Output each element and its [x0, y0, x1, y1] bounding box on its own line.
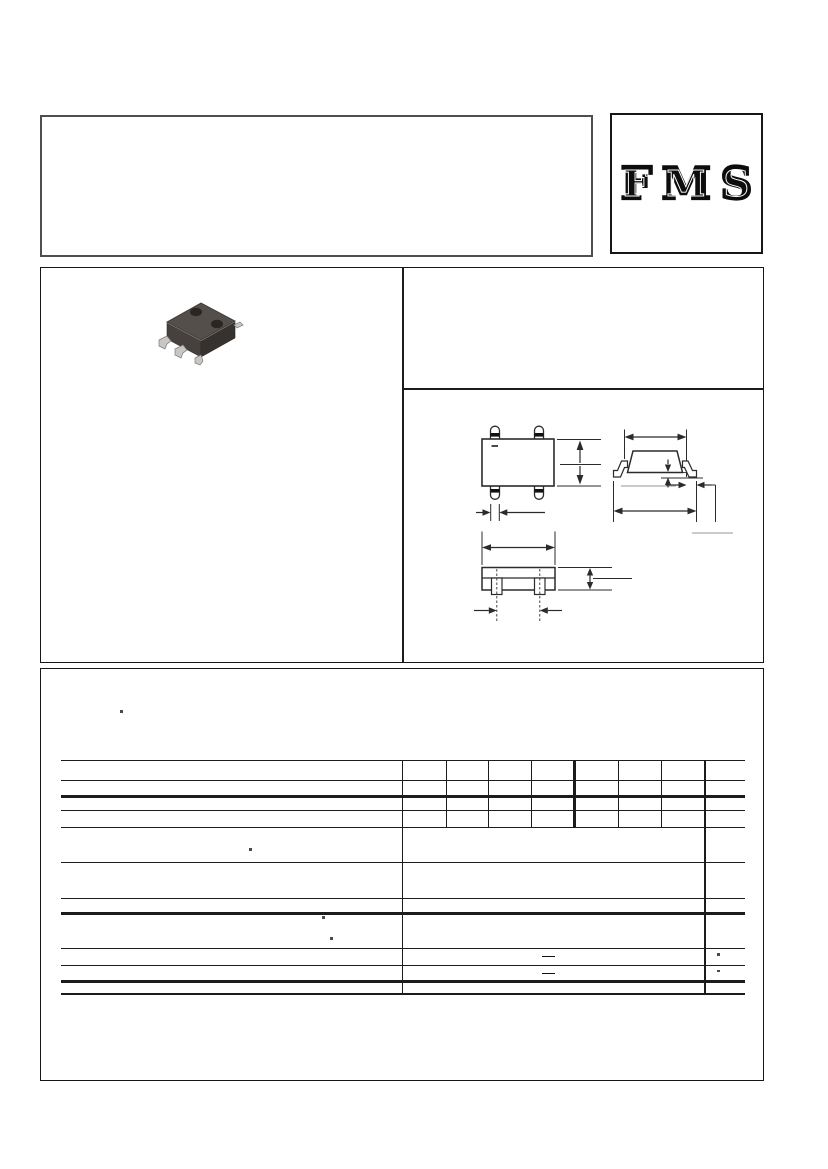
logo-letter: F: [620, 161, 652, 206]
brand-logo: FMS: [620, 161, 752, 206]
chip-hole-2: [211, 320, 223, 328]
lead-bottom-2: [535, 486, 544, 499]
lead-band: [491, 489, 500, 493]
product-photo-chip: [150, 293, 250, 368]
leader-line: [712, 485, 716, 522]
note-bullet-header: [120, 710, 123, 713]
table-rule-v: [618, 760, 619, 829]
unit-dot-mark: [717, 953, 720, 956]
package-side-view: [614, 430, 734, 534]
note-bullet-row: [249, 848, 252, 851]
table-rule-v-thick: [573, 760, 576, 829]
package-outline-drawings: [455, 405, 765, 645]
logo-box: FMS: [610, 113, 763, 254]
table-rule-v: [661, 760, 662, 829]
datasheet-page: FMS: [0, 0, 828, 1169]
lead-bottom-1: [491, 486, 500, 499]
chip-hole-1: [190, 308, 202, 316]
package-front-view: [474, 532, 632, 622]
logo-letter: S: [720, 161, 753, 206]
overview-vertical-divider: [402, 267, 404, 663]
title-box: [40, 115, 593, 257]
chip-lead-far: [234, 322, 243, 328]
table-rule-v: [446, 760, 447, 829]
lead-top-1: [491, 426, 500, 439]
value-dash-mark: [542, 973, 555, 975]
unit-dot-mark: [717, 970, 720, 973]
side-lead-right: [683, 461, 697, 477]
note-bullet-row: [330, 937, 333, 940]
table-rule-v-paramcol: [402, 760, 403, 995]
table-rule-v-unitcol-thick: [704, 760, 707, 994]
value-dash-mark: [542, 956, 555, 958]
features-bottom-divider: [403, 388, 763, 390]
table-rule-v: [488, 760, 489, 829]
note-bullet-row: [322, 916, 325, 919]
lead-top-2: [535, 426, 544, 439]
package-top-view: [476, 426, 601, 521]
side-lead-left: [614, 461, 628, 477]
logo-letter: M: [661, 161, 711, 206]
table-rule-v: [531, 760, 532, 829]
lead-band: [491, 433, 500, 437]
features-panel: [410, 272, 755, 382]
side-body: [628, 451, 683, 473]
lead-band: [535, 433, 544, 437]
chip-lead-front: [195, 355, 203, 365]
lead-band: [535, 489, 544, 493]
